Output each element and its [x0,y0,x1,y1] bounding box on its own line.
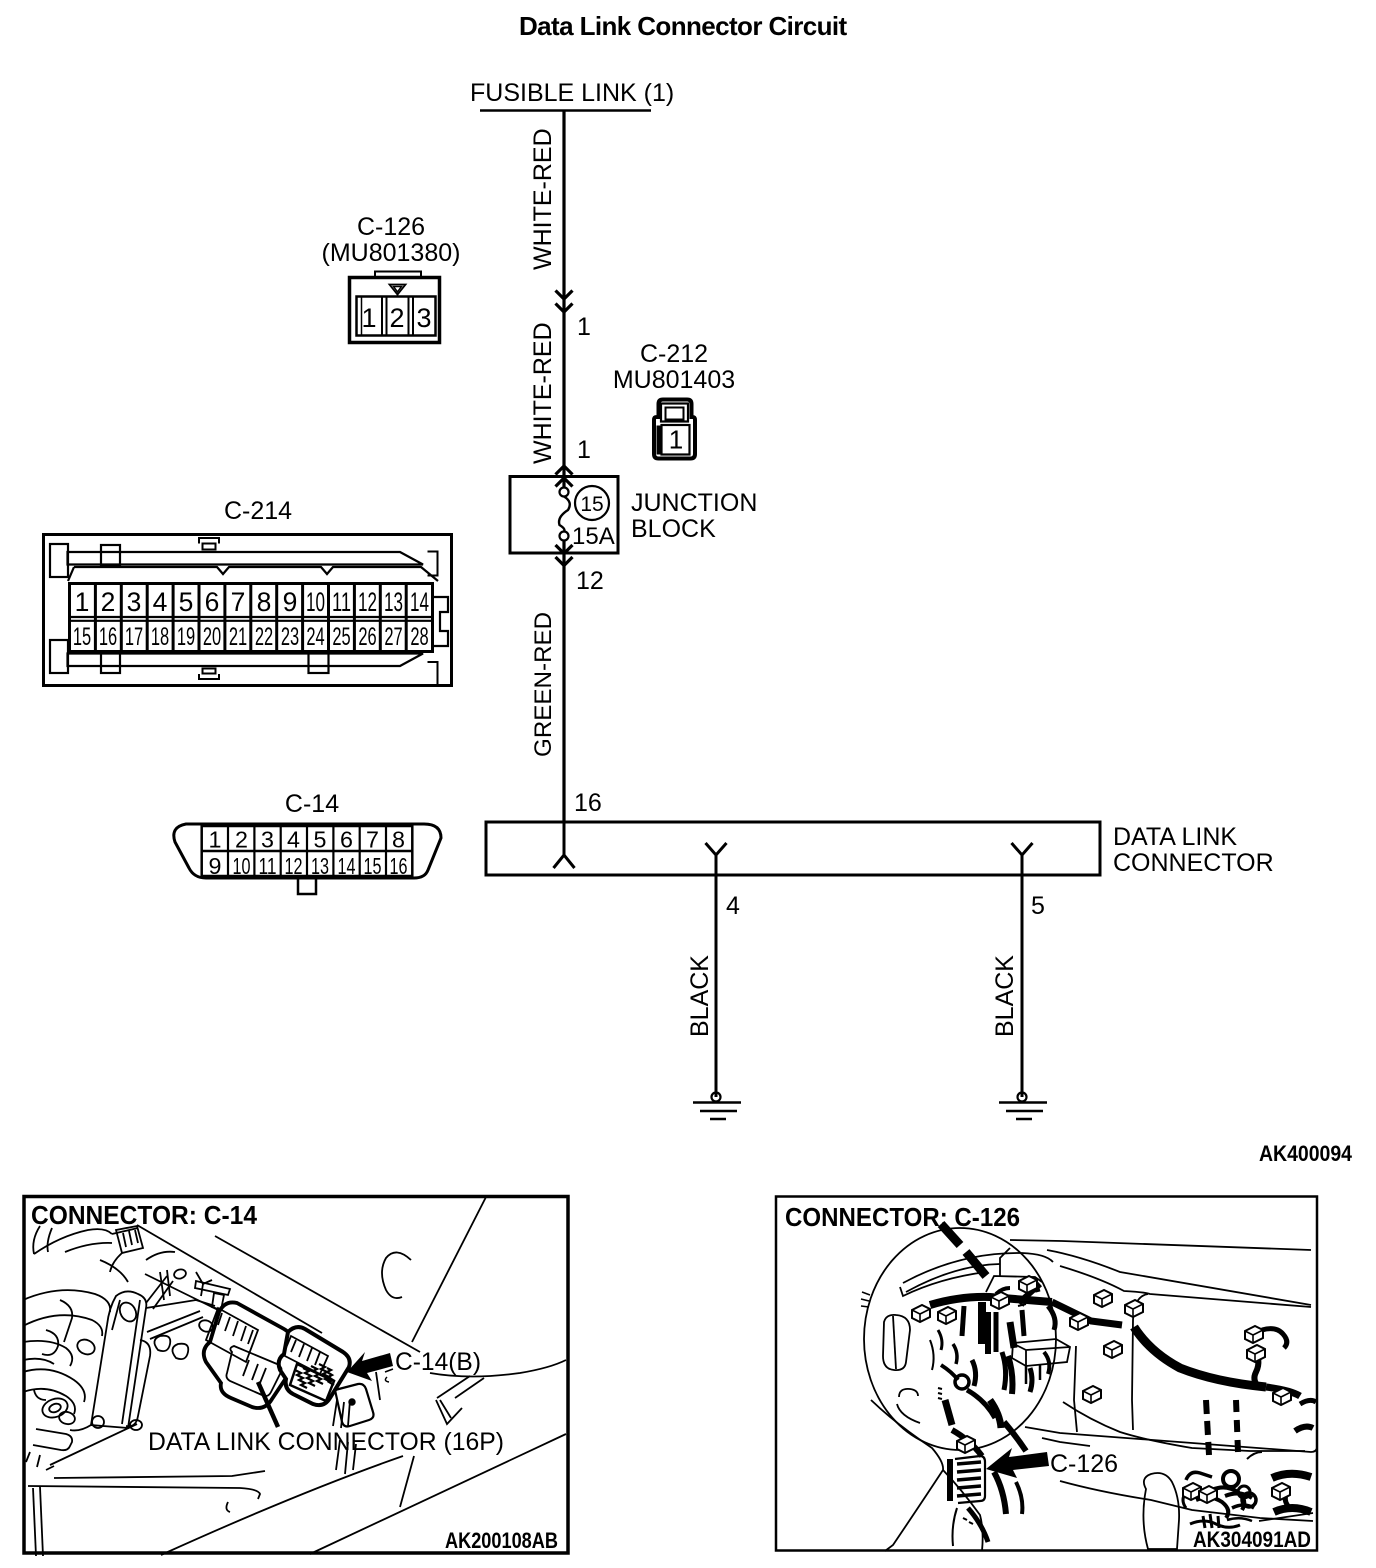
svg-text:12: 12 [358,587,377,617]
svg-text:4: 4 [153,587,168,617]
svg-text:1: 1 [361,303,376,333]
svg-text:C-212: C-212 [640,340,708,368]
svg-text:FUSIBLE LINK (1): FUSIBLE LINK (1) [470,79,674,107]
svg-text:CONNECTOR: C-14: CONNECTOR: C-14 [31,1200,258,1230]
svg-text:10: 10 [306,587,325,617]
svg-text:16: 16 [99,624,117,651]
svg-text:25: 25 [332,624,350,651]
svg-text:1: 1 [209,827,222,853]
svg-text:23: 23 [281,624,299,651]
svg-text:1: 1 [577,313,591,341]
svg-text:15: 15 [73,624,91,651]
svg-text:11: 11 [259,853,277,879]
svg-text:5: 5 [314,827,327,853]
svg-text:DATA LINK: DATA LINK [1113,823,1237,851]
svg-text:6: 6 [205,587,220,617]
svg-text:9: 9 [283,587,298,617]
svg-text:2: 2 [101,587,116,617]
svg-text:2: 2 [389,303,404,333]
svg-text:27: 27 [384,624,402,651]
svg-text:10: 10 [233,853,251,879]
svg-text:8: 8 [257,587,272,617]
svg-text:5: 5 [179,587,194,617]
svg-text:21: 21 [229,624,247,651]
svg-text:BLACK: BLACK [991,955,1019,1037]
svg-text:24: 24 [306,624,324,651]
svg-text:13: 13 [311,853,329,879]
svg-text:15A: 15A [572,523,615,550]
svg-text:(MU801380): (MU801380) [322,239,461,267]
svg-text:22: 22 [255,624,273,651]
svg-text:MU801403: MU801403 [613,366,735,394]
svg-text:26: 26 [358,624,376,651]
svg-text:5: 5 [1031,892,1045,920]
svg-text:4: 4 [287,827,300,853]
svg-text:9: 9 [209,853,222,879]
svg-text:BLACK: BLACK [686,955,714,1037]
svg-text:16: 16 [390,853,408,879]
svg-text:C-214: C-214 [224,497,292,525]
svg-text:13: 13 [384,587,403,617]
svg-text:1: 1 [75,587,90,617]
svg-text:Data Link Connector Circuit: Data Link Connector Circuit [519,11,848,41]
svg-text:WHITE-RED: WHITE-RED [529,128,557,270]
svg-text:1: 1 [669,425,683,455]
svg-text:DATA LINK CONNECTOR (16P): DATA LINK CONNECTOR (16P) [148,1428,504,1456]
svg-text:12: 12 [576,567,604,595]
svg-text:3: 3 [416,303,431,333]
svg-text:C-126: C-126 [357,213,425,241]
svg-text:C-126: C-126 [1050,1450,1118,1478]
svg-text:14: 14 [410,587,429,617]
svg-text:14: 14 [338,853,356,879]
svg-text:8: 8 [392,827,405,853]
svg-text:AK200108AB: AK200108AB [445,1528,558,1553]
svg-text:1: 1 [577,436,591,464]
svg-text:CONNECTOR: C-126: CONNECTOR: C-126 [785,1202,1020,1232]
svg-text:GREEN-RED: GREEN-RED [530,612,557,757]
svg-text:7: 7 [231,587,246,617]
svg-text:BLOCK: BLOCK [631,515,716,543]
svg-text:19: 19 [177,624,195,651]
svg-text:28: 28 [410,624,428,651]
svg-text:12: 12 [285,853,303,879]
svg-text:4: 4 [726,892,740,920]
svg-text:18: 18 [151,624,169,651]
svg-text:11: 11 [332,587,351,617]
svg-text:15: 15 [364,853,382,879]
svg-text:17: 17 [125,624,143,651]
svg-text:WHITE-RED: WHITE-RED [529,322,557,464]
svg-text:AK400094: AK400094 [1259,1141,1353,1166]
svg-text:C-14(B): C-14(B) [395,1348,481,1376]
svg-text:3: 3 [127,587,142,617]
svg-text:7: 7 [366,827,379,853]
svg-text:20: 20 [203,624,221,651]
svg-text:15: 15 [580,493,603,516]
svg-text:16: 16 [574,789,602,817]
svg-text:C-14: C-14 [285,790,339,818]
svg-text:JUNCTION: JUNCTION [631,489,757,517]
svg-text:2: 2 [235,827,248,853]
svg-text:CONNECTOR: CONNECTOR [1113,849,1274,877]
svg-text:6: 6 [340,827,353,853]
svg-text:AK304091AD: AK304091AD [1193,1527,1311,1552]
svg-text:3: 3 [261,827,274,853]
